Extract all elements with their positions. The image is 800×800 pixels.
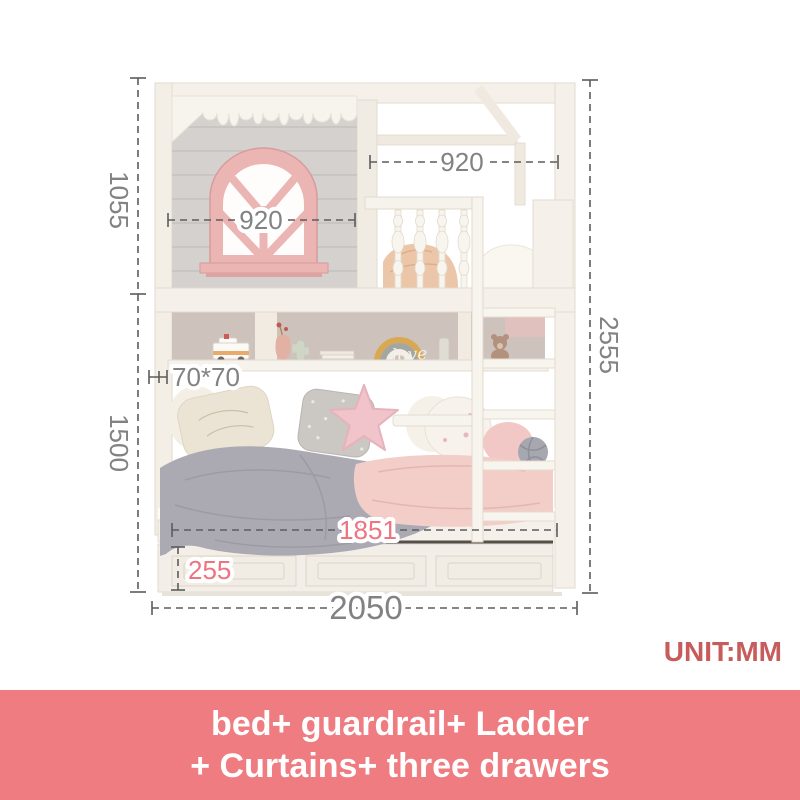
feature-banner: bed+ guardrail+ Ladder + Curtains+ three… xyxy=(0,690,800,800)
product-dimension-image: love xyxy=(0,0,800,800)
drawer-front xyxy=(306,556,426,586)
feature-banner-line1: bed+ guardrail+ Ladder xyxy=(211,703,589,745)
lower-guardrail xyxy=(393,415,473,426)
window-sill xyxy=(200,263,328,273)
ladder-rung xyxy=(483,410,555,419)
bunk-bed-photo: love xyxy=(0,0,800,690)
dim-label-top-frame-width: 920 xyxy=(440,147,483,177)
dim-label-overall-length: 2050 xyxy=(329,589,402,626)
dim-label-upper-height: 1055 xyxy=(104,171,134,229)
dim-label-sleep-length: 1851 xyxy=(339,515,397,545)
dim-label-window-width: 920 xyxy=(239,205,282,235)
dim-label-post-section: 70*70 xyxy=(172,362,240,392)
canopy-back-rail xyxy=(377,135,517,145)
dim-label-total-height: 2555 xyxy=(594,316,624,374)
ladder-rung xyxy=(483,308,555,317)
ladder-rung xyxy=(483,512,555,521)
ladder-left-rail xyxy=(472,197,483,542)
drawer-front xyxy=(436,556,553,586)
spindle xyxy=(458,210,470,288)
upper-side-board xyxy=(533,200,573,290)
ladder-rung xyxy=(483,359,555,368)
dim-label-drawer-height: 255 xyxy=(188,555,231,585)
unit-note: UNIT:MM xyxy=(664,636,782,667)
bottle-icon xyxy=(439,338,449,362)
upper-guardrail xyxy=(365,197,573,290)
ladder-rung xyxy=(483,461,555,470)
feature-banner-line2: + Curtains+ three drawers xyxy=(190,745,610,787)
dim-label-lower-height: 1500 xyxy=(104,414,134,472)
